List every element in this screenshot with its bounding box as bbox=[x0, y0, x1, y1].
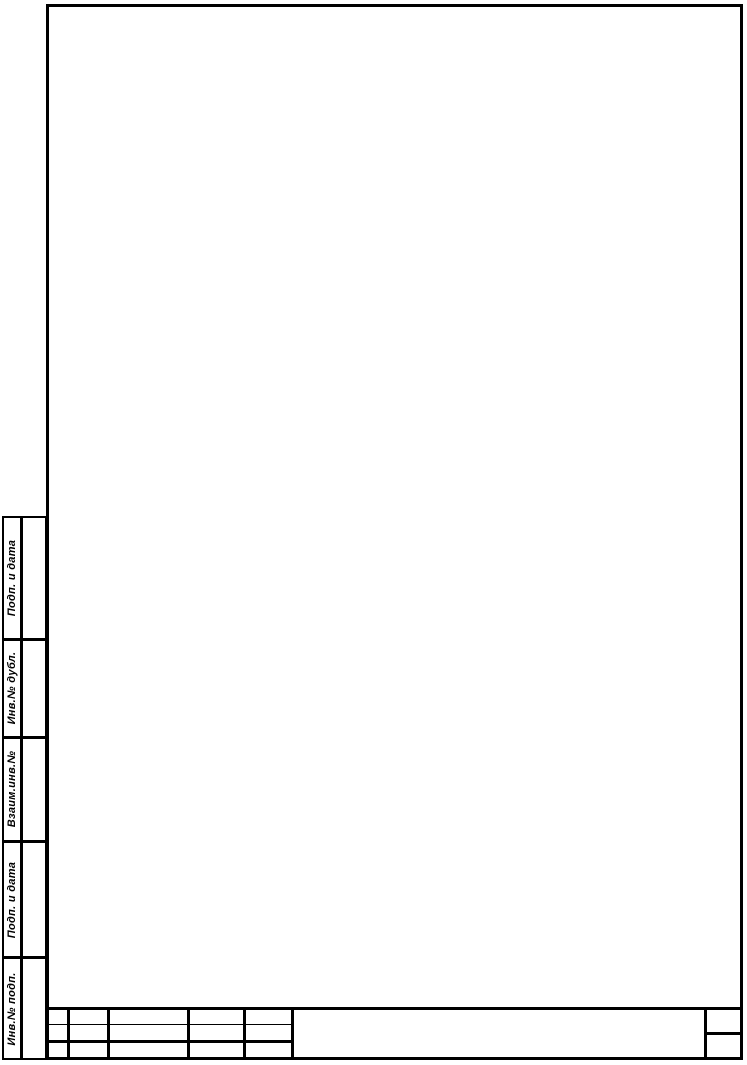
revision-cell bbox=[70, 1010, 110, 1024]
margin-label-cell: Подп. и дата bbox=[4, 843, 23, 956]
margin-label-inv-no-podl: Инв.№ подп. bbox=[6, 972, 18, 1045]
margin-block-podp-i-data-upper: Подп. и дата bbox=[4, 518, 45, 638]
revision-cell bbox=[246, 1010, 291, 1024]
revision-cell bbox=[190, 1010, 246, 1024]
margin-entry-cell bbox=[23, 518, 45, 638]
margin-entry-cell bbox=[23, 739, 45, 841]
revision-cell bbox=[190, 1043, 246, 1057]
margin-label-podp-i-data-lower: Подп. и дата bbox=[6, 861, 18, 937]
left-margin-column: Подп. и дата Инв.№ дубл. Взаим.инв.№ Под… bbox=[2, 516, 47, 1060]
revision-cell bbox=[190, 1025, 246, 1040]
revision-cell bbox=[49, 1043, 70, 1057]
revision-cell bbox=[49, 1025, 70, 1040]
revision-cell bbox=[246, 1043, 291, 1057]
corner-cell-top bbox=[707, 1010, 740, 1035]
revision-cell bbox=[110, 1010, 190, 1024]
revision-table-row bbox=[49, 1025, 291, 1043]
revision-cell bbox=[110, 1043, 190, 1057]
drawing-frame-border bbox=[46, 4, 743, 1060]
margin-entry-cell bbox=[23, 843, 45, 956]
revision-table-row bbox=[49, 1043, 291, 1057]
corner-cell-bottom bbox=[707, 1035, 740, 1057]
revision-cell bbox=[246, 1025, 291, 1040]
revision-cell bbox=[110, 1025, 190, 1040]
margin-label-podp-i-data-upper: Подп. и дата bbox=[6, 540, 18, 616]
margin-label-cell: Инв.№ подп. bbox=[4, 959, 23, 1058]
margin-label-inv-no-dubl: Инв.№ дубл. bbox=[6, 652, 18, 725]
drawing-sheet: Подп. и дата Инв.№ дубл. Взаим.инв.№ Под… bbox=[0, 0, 747, 1065]
document-designation-cell bbox=[294, 1010, 704, 1057]
revision-table bbox=[49, 1010, 294, 1057]
margin-entry-cell bbox=[23, 641, 45, 735]
revision-cell bbox=[49, 1010, 70, 1024]
revision-cell bbox=[70, 1025, 110, 1040]
margin-block-vzaim-inv-no: Взаим.инв.№ bbox=[4, 736, 45, 841]
margin-entry-cell bbox=[23, 959, 45, 1058]
margin-block-inv-no-podl: Инв.№ подп. bbox=[4, 956, 45, 1058]
margin-block-inv-no-dubl: Инв.№ дубл. bbox=[4, 638, 45, 735]
revision-table-row bbox=[49, 1010, 291, 1025]
margin-block-podp-i-data-lower: Подп. и дата bbox=[4, 840, 45, 956]
margin-label-cell: Инв.№ дубл. bbox=[4, 641, 23, 735]
margin-label-vzaim-inv-no: Взаим.инв.№ bbox=[6, 751, 18, 828]
sheet-corner-box bbox=[704, 1010, 740, 1057]
margin-label-cell: Подп. и дата bbox=[4, 518, 23, 638]
margin-label-cell: Взаим.инв.№ bbox=[4, 739, 23, 841]
revision-cell bbox=[70, 1043, 110, 1057]
